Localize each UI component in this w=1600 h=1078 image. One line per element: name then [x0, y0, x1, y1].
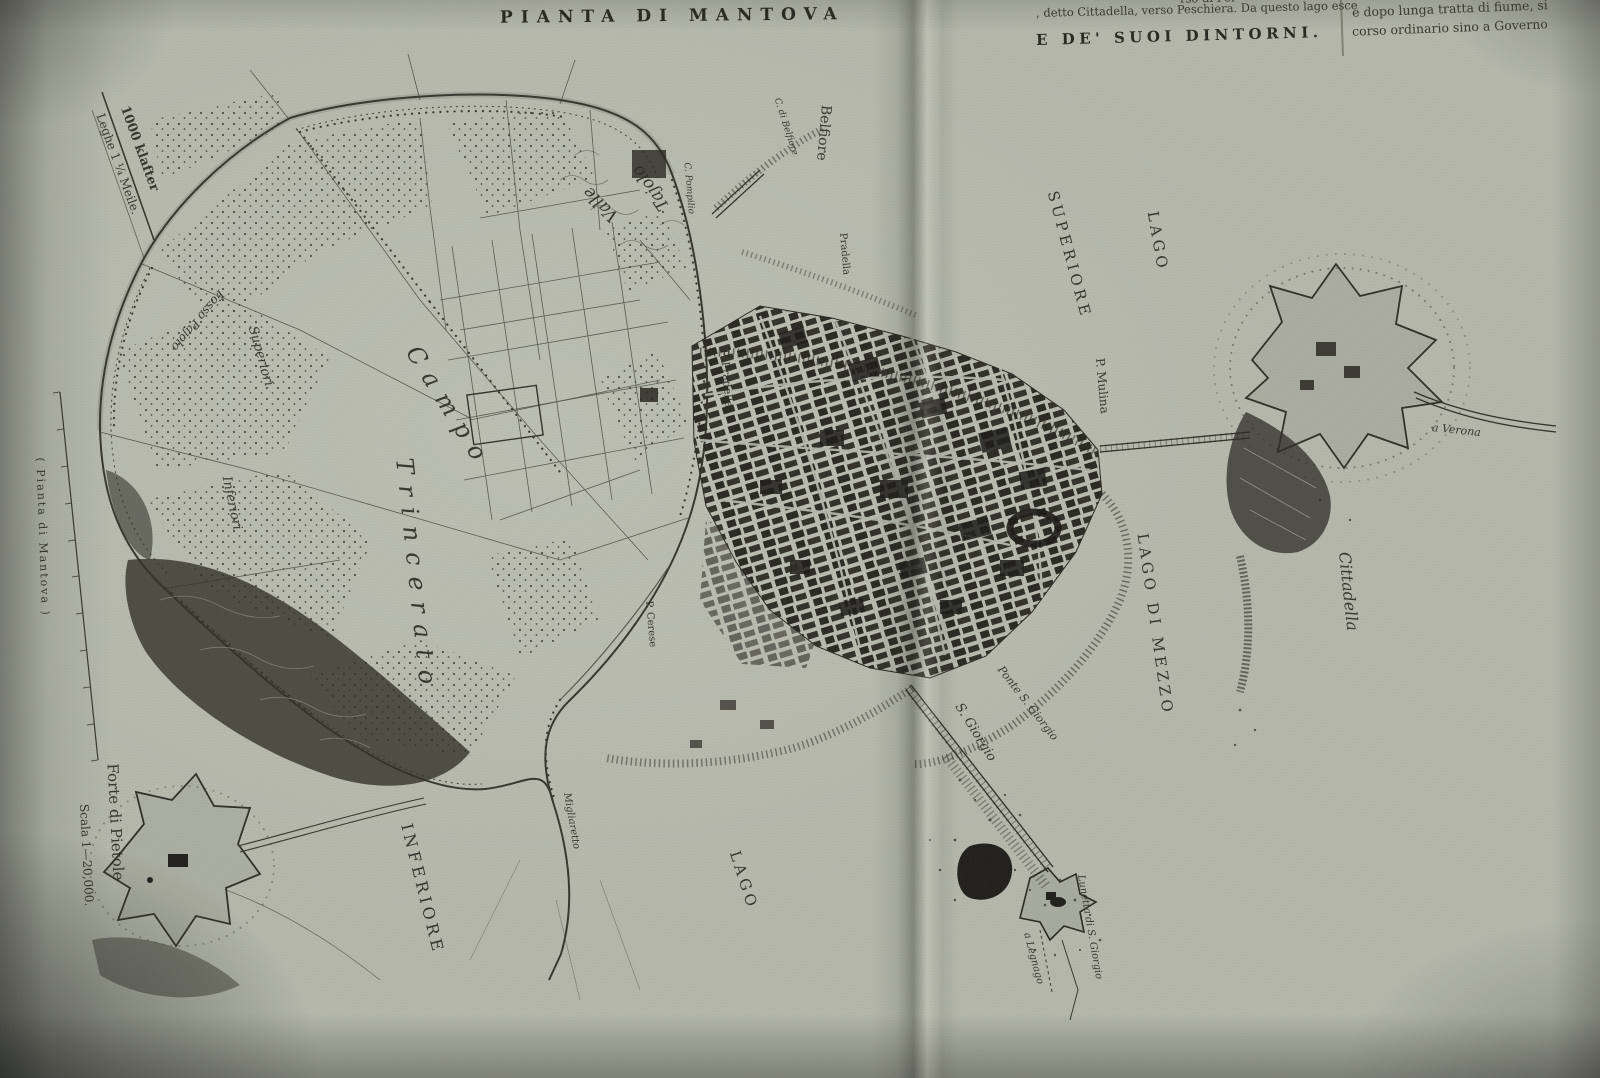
forte-di-pietole	[90, 774, 426, 997]
page-title: PIANTA DI MANTOVA	[500, 4, 845, 28]
cittadella-fort	[1214, 254, 1556, 553]
map-engraving	[0, 0, 1600, 1078]
city-blocks	[690, 306, 1102, 748]
scale-bar-lines	[53, 92, 154, 761]
photo-of-book-page: PIANTA DI MANTOVA rso di Por- , detto Ci…	[0, 0, 1600, 1078]
